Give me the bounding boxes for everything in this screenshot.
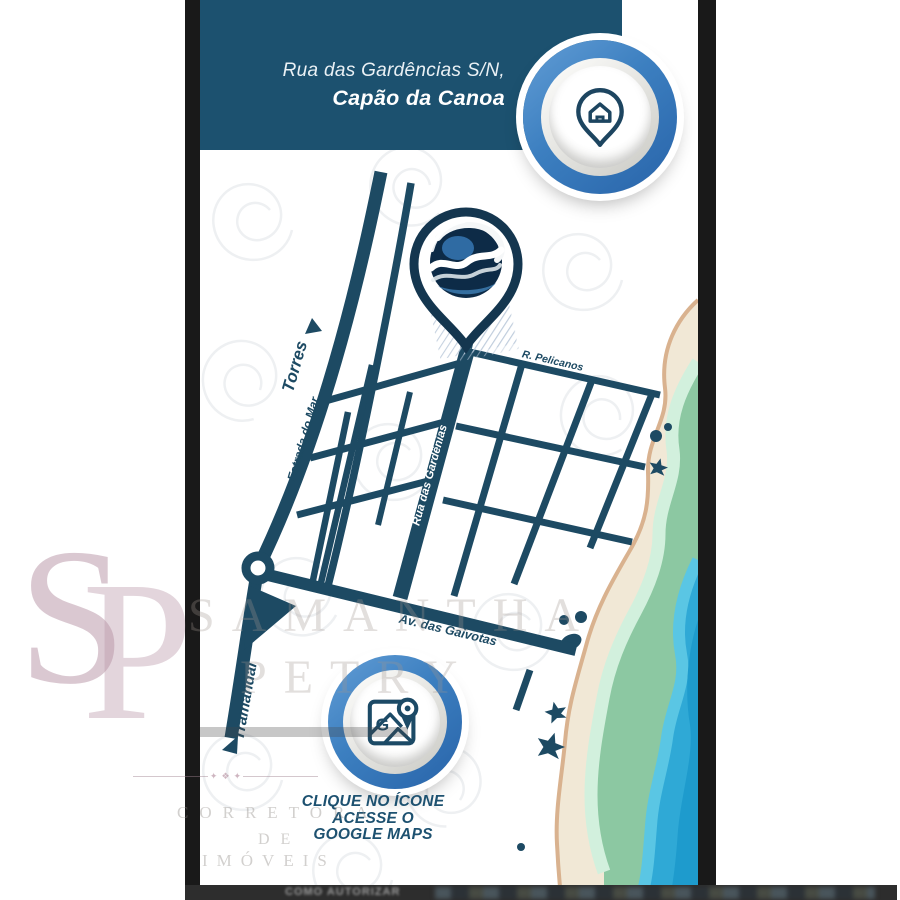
- address-street: Rua das Gardências S/N,: [283, 60, 505, 82]
- flyer-content: Torres Estrada do Mar Tramandaí R. Pelic…: [200, 0, 698, 885]
- cta-line-1: CLIQUE NO ÍCONE: [233, 794, 513, 811]
- bottom-shade: [200, 727, 408, 737]
- monogram-p: P: [82, 552, 193, 752]
- page: Torres Estrada do Mar Tramandaí R. Pelic…: [0, 0, 900, 900]
- gallery-next-row-strip[interactable]: COMO AUTORIZAR: [185, 885, 897, 900]
- home-location-button[interactable]: [523, 40, 677, 194]
- cta-line-2: ACESSE O: [233, 811, 513, 828]
- google-maps-button[interactable]: G: [328, 655, 462, 789]
- house-pin-icon: [567, 84, 633, 150]
- street-gaivotas: [264, 574, 576, 650]
- home-button-face: [549, 66, 651, 168]
- maps-button-bevel: G: [343, 670, 447, 774]
- cta-text: CLIQUE NO ÍCONE ACESSE O GOOGLE MAPS: [233, 794, 513, 844]
- map-graphic: Torres Estrada do Mar Tramandaí R. Pelic…: [200, 150, 698, 885]
- next-image-caption: COMO AUTORIZAR: [285, 886, 400, 898]
- cta-line-3: GOOGLE MAPS: [233, 827, 513, 844]
- wave-logo-icon: [430, 221, 502, 298]
- street-label-torres: Torres: [278, 339, 311, 394]
- google-maps-icon: G: [364, 691, 426, 753]
- phone-screenshot-frame: Torres Estrada do Mar Tramandaí R. Pelic…: [185, 0, 716, 900]
- next-image-thumbnails: [435, 887, 875, 899]
- home-button-bevel: [541, 58, 659, 176]
- beach: [517, 300, 698, 885]
- monogram-s: S: [18, 520, 126, 715]
- torres-arrow-icon: [305, 318, 322, 334]
- maps-button-face: G: [350, 677, 440, 767]
- address-city: Capão da Canoa: [283, 86, 505, 111]
- roundabout: [246, 556, 270, 580]
